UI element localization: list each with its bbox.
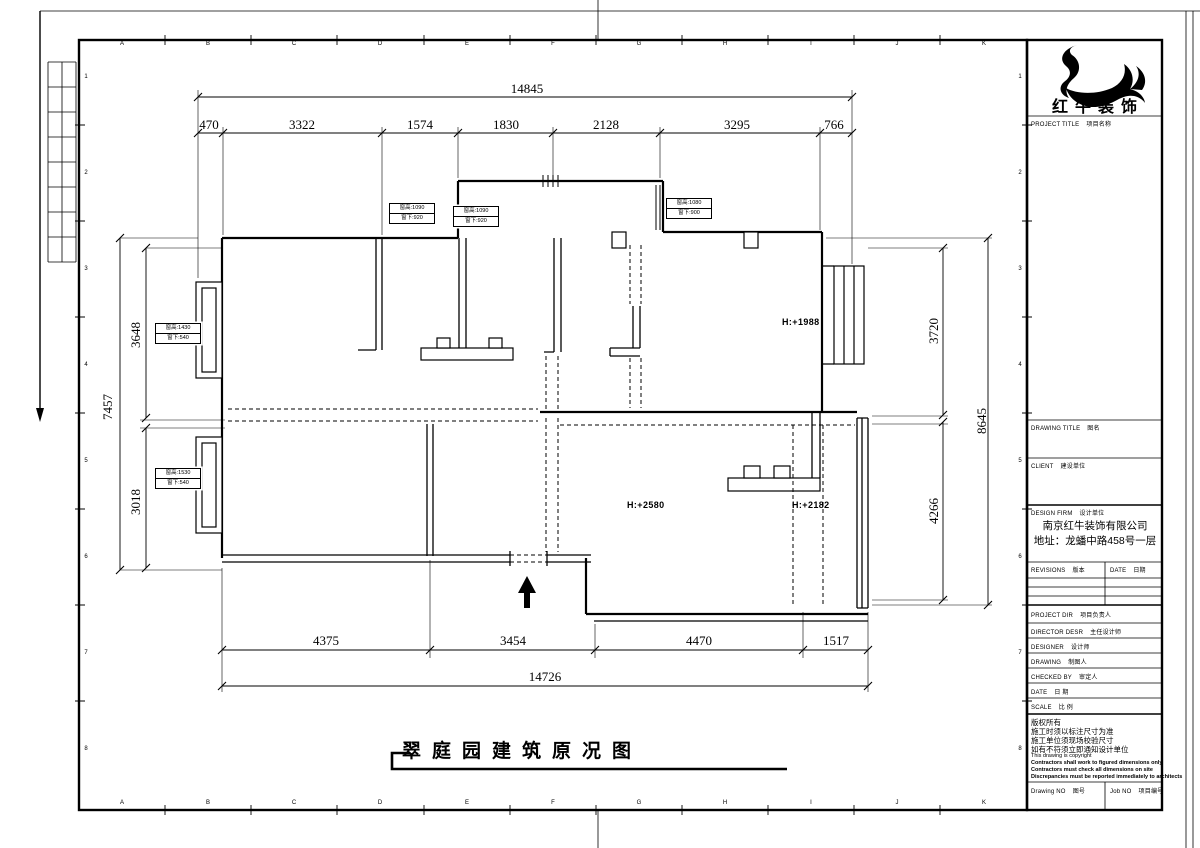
- grid-number: 1: [1018, 74, 1021, 80]
- date-col-header: DATE日期: [1110, 565, 1146, 574]
- date-row-en: DATE: [1031, 690, 1047, 696]
- grid-number: 4: [1018, 362, 1021, 368]
- grid-letter: H: [723, 800, 727, 806]
- revisions-cn: 版本: [1072, 568, 1084, 574]
- window-tag-sill: 窗下:920: [390, 214, 434, 223]
- project-dir-row: PROJECT DIR项目负责人: [1031, 610, 1111, 619]
- sheet-frame: [79, 40, 1162, 810]
- window-tag-height: 窗高:1090: [454, 207, 498, 217]
- date-row: DATE日 期: [1031, 687, 1069, 696]
- dim-left-seg: 3648: [128, 322, 144, 348]
- director-row: DIRECTOR DESR主任设计师: [1031, 627, 1121, 636]
- trim-arrow: [36, 408, 44, 422]
- project-title-row: PROJECT TITLE项目名称: [1031, 119, 1111, 128]
- grid-letter: E: [465, 800, 469, 806]
- design-firm-cn: 设计单位: [1080, 511, 1105, 517]
- grid-letter: E: [465, 41, 469, 47]
- designer-row: DESIGNER设计师: [1031, 642, 1090, 651]
- window-tag: 窗高:1430 窗下:540: [155, 323, 201, 344]
- date-col-en: DATE: [1110, 568, 1126, 574]
- grid-letter: J: [896, 41, 899, 47]
- job-no-cn: 项目编号: [1139, 789, 1164, 795]
- ceiling-height-label: H:+2182: [792, 500, 830, 510]
- company-address: 地址：龙蟠中路458号一层: [1034, 533, 1157, 548]
- job-no-en: Job NO: [1110, 789, 1132, 795]
- dim-top-seg: 1830: [493, 117, 519, 133]
- checked-by-en: CHECKED BY: [1031, 675, 1072, 681]
- dim-left-total: 7457: [100, 394, 116, 420]
- design-firm-row: DESIGN FIRM设计单位: [1031, 508, 1104, 517]
- job-no-row: Job NO项目编号: [1110, 786, 1163, 795]
- window-tag: 窗高:1530 窗下:540: [155, 468, 201, 489]
- grid-number: 5: [84, 458, 87, 464]
- date-col-cn: 日期: [1133, 568, 1145, 574]
- window-tag-sill: 窗下:540: [156, 334, 200, 343]
- dim-top-seg: 1574: [407, 117, 433, 133]
- dim-top-seg: 3295: [724, 117, 750, 133]
- dim-top-seg: 2128: [593, 117, 619, 133]
- window-tag: 窗高:1080 窗下:900: [666, 198, 712, 219]
- project-dir-cn: 项目负责人: [1080, 613, 1111, 619]
- grid-letter: D: [378, 41, 382, 47]
- sheet-title: 翠庭园建筑原况图: [402, 736, 642, 763]
- company-name: 南京红牛装饰有限公司: [1043, 518, 1148, 533]
- outer-walls: [222, 181, 868, 614]
- checked-by-row: CHECKED BY审定人: [1031, 672, 1098, 681]
- grid-letter: C: [292, 800, 296, 806]
- window-tag-height: 窗高:1080: [667, 199, 711, 209]
- grid-number: 3: [1018, 266, 1021, 272]
- grid-number: 7: [84, 650, 87, 656]
- dimension-lines: [120, 97, 988, 686]
- director-cn: 主任设计师: [1090, 630, 1121, 636]
- dim-top-seg: 766: [824, 117, 844, 133]
- dim-right-total: 8645: [974, 408, 990, 434]
- grid-number: 6: [84, 554, 87, 560]
- dim-bottom-seg: 1517: [823, 633, 849, 649]
- grid-letter: K: [982, 41, 986, 47]
- copyright-en-line: This drawing is copyright: [1031, 753, 1092, 759]
- grid-letter: I: [810, 800, 812, 806]
- grid-letter: B: [206, 41, 210, 47]
- drawing-sheet: A B C D E F G H I J K A B C D E F G H I …: [0, 0, 1200, 848]
- dim-bottom-seg: 4375: [313, 633, 339, 649]
- grid-letter: J: [896, 800, 899, 806]
- grid-letter: F: [551, 41, 555, 47]
- date-row-cn: 日 期: [1054, 690, 1068, 696]
- window-tag-sill: 窗下:900: [667, 209, 711, 218]
- window-tag: 窗高:1090 窗下:920: [453, 206, 499, 227]
- revisions-header: REVISIONS版本: [1031, 565, 1085, 574]
- drawing-title-cn: 图名: [1087, 426, 1099, 432]
- drawing-no-cn: 图号: [1073, 789, 1085, 795]
- brand-name: 红牛装饰: [1052, 93, 1144, 117]
- interior-walls: [222, 238, 868, 621]
- grid-number: 1: [84, 74, 87, 80]
- drawing-title-row: DRAWING TITLE图名: [1031, 423, 1100, 432]
- grid-number: 7: [1018, 650, 1021, 656]
- grid-number: 8: [84, 746, 87, 752]
- dim-right-seg: 4266: [926, 498, 942, 524]
- drawing-by-row: DRAWING制图人: [1031, 657, 1087, 666]
- drawing-by-en: DRAWING: [1031, 660, 1061, 666]
- dim-top-total: 14845: [511, 81, 544, 97]
- client-cn: 建设单位: [1061, 464, 1086, 470]
- scale-row: SCALE比 例: [1031, 702, 1073, 711]
- project-title-en: PROJECT TITLE: [1031, 122, 1079, 128]
- grid-letter: I: [810, 41, 812, 47]
- window-tag-sill: 窗下:920: [454, 217, 498, 226]
- grid-number: 2: [84, 170, 87, 176]
- dim-left-seg: 3018: [128, 489, 144, 515]
- dim-bottom-total: 14726: [529, 669, 562, 685]
- grid-letter: B: [206, 800, 210, 806]
- designer-en: DESIGNER: [1031, 645, 1064, 651]
- grid-letter: C: [292, 41, 296, 47]
- grid-number: 6: [1018, 554, 1021, 560]
- copyright-en-bold-line: Contractors shall work to figured dimens…: [1031, 760, 1162, 766]
- ceiling-height-label: H:+2580: [627, 500, 665, 510]
- dim-top-seg: 3322: [289, 117, 315, 133]
- project-title-cn: 项目名称: [1086, 122, 1111, 128]
- checked-by-cn: 审定人: [1079, 675, 1098, 681]
- director-en: DIRECTOR DESR: [1031, 630, 1083, 636]
- grid-letter: A: [120, 41, 124, 47]
- drawing-title-en: DRAWING TITLE: [1031, 426, 1080, 432]
- entry-arrow-icon: [518, 576, 536, 608]
- grid-letter: A: [120, 800, 124, 806]
- window-tag: 窗高:1090 窗下:920: [389, 203, 435, 224]
- grid-number: 4: [84, 362, 87, 368]
- window-tag-height: 窗高:1090: [390, 204, 434, 214]
- grid-letter: K: [982, 800, 986, 806]
- grid-letter: F: [551, 800, 555, 806]
- window-tag-height: 窗高:1430: [156, 324, 200, 334]
- dim-bottom-seg: 3454: [500, 633, 526, 649]
- dimension-ticks: [116, 93, 992, 690]
- drawing-no-row: Drawing NO图号: [1031, 786, 1085, 795]
- grid-number: 8: [1018, 746, 1021, 752]
- dim-top-seg: 470: [199, 117, 219, 133]
- grid-letter: H: [723, 41, 727, 47]
- drawing-no-en: Drawing NO: [1031, 789, 1066, 795]
- scale-row-en: SCALE: [1031, 705, 1052, 711]
- grid-letter: G: [637, 41, 642, 47]
- project-dir-en: PROJECT DIR: [1031, 613, 1073, 619]
- grid-number: 3: [84, 266, 87, 272]
- revisions-en: REVISIONS: [1031, 568, 1065, 574]
- client-en: CLIENT: [1031, 464, 1054, 470]
- grid-number: 2: [1018, 170, 1021, 176]
- grid-letter: D: [378, 800, 382, 806]
- copyright-en-bold-line: Contractors must check all dimensions on…: [1031, 767, 1153, 773]
- design-firm-en: DESIGN FIRM: [1031, 511, 1073, 517]
- dim-bottom-seg: 4470: [686, 633, 712, 649]
- copyright-en-bold-line: Discrepancies must be reported immediate…: [1031, 774, 1182, 780]
- grid-number: 5: [1018, 458, 1021, 464]
- signature-grid: [48, 62, 76, 262]
- window-tag-sill: 窗下:540: [156, 479, 200, 488]
- window-tag-height: 窗高:1530: [156, 469, 200, 479]
- grid-ticks: [75, 35, 1032, 815]
- dashed-lines: [228, 245, 855, 606]
- ceiling-height-label: H:+1988: [782, 317, 820, 327]
- client-row: CLIENT建设单位: [1031, 461, 1085, 470]
- dim-right-seg: 3720: [926, 318, 942, 344]
- fixtures-and-windows: [196, 175, 864, 533]
- grid-letter: G: [637, 800, 642, 806]
- designer-cn: 设计师: [1071, 645, 1090, 651]
- scale-row-cn: 比 例: [1059, 705, 1073, 711]
- drawing-by-cn: 制图人: [1068, 660, 1087, 666]
